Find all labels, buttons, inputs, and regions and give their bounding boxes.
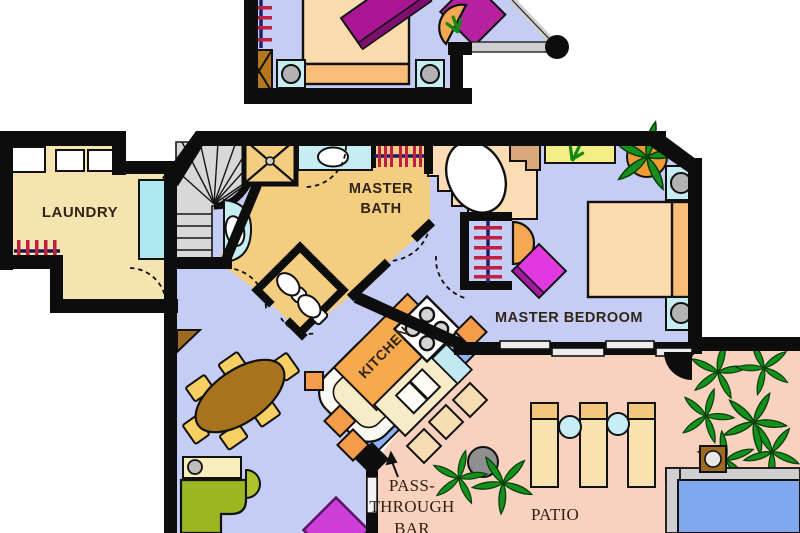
side-table [607,413,629,435]
floor-plan: LAUNDRY MASTER BATH KITCHEN MASTER BEDRO… [0,0,800,533]
nightstand-lamp [277,60,305,88]
vanity-sink [298,143,372,170]
dryer [56,150,84,171]
washer [12,147,45,172]
lounge-chairs [531,403,655,487]
dryer [88,150,113,171]
laundry-appliances [12,147,113,172]
bed [588,202,692,297]
laundry-door-panel [139,180,166,259]
side-table [559,416,581,438]
nightstand-lamp [416,60,444,88]
floor-plan-drawing [0,0,800,533]
window [367,477,377,513]
planter-pot [700,446,726,472]
spa-pool [666,468,800,533]
